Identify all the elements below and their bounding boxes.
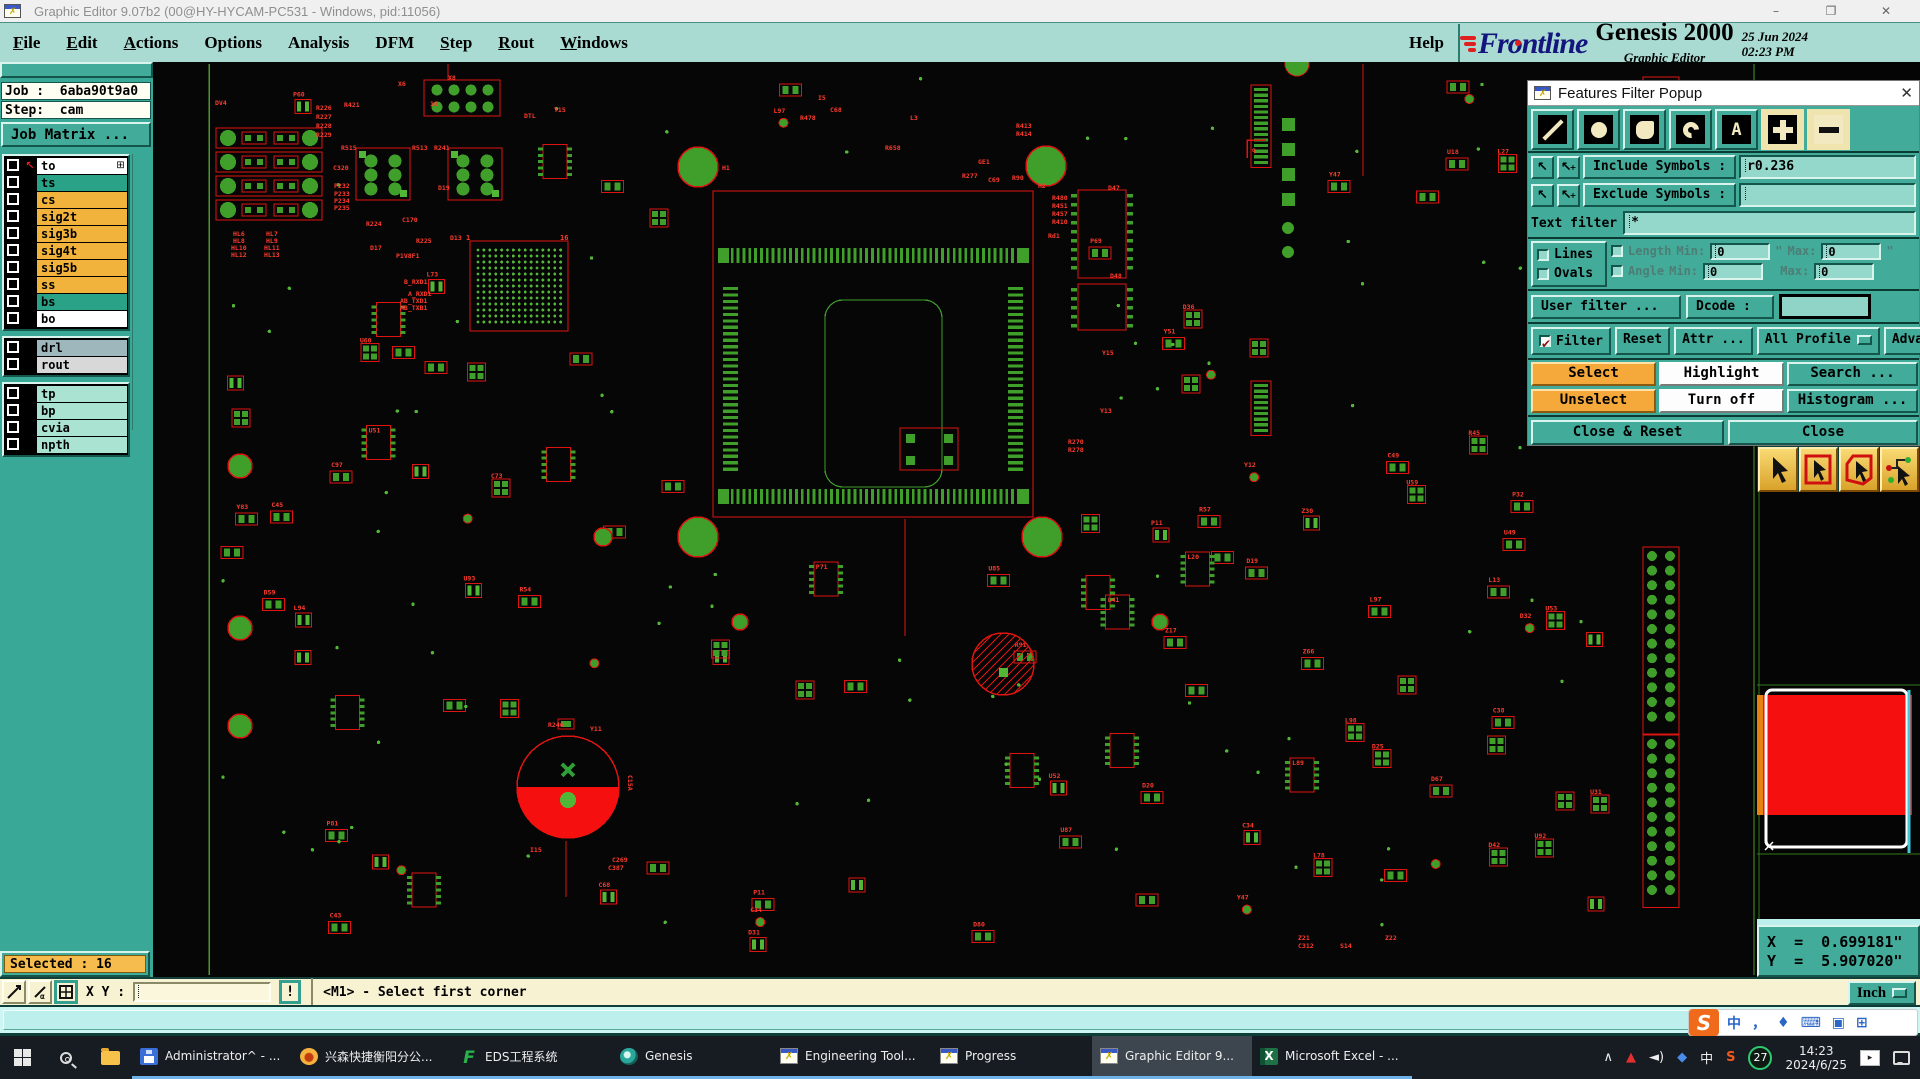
ime-indicator[interactable]: 中 (1700, 1048, 1713, 1067)
length-checkbox[interactable] (1611, 245, 1623, 257)
select-button[interactable]: Select (1531, 362, 1656, 386)
sidebar: Job : 6aba90t9a0 Step: cam Job Matrix ..… (0, 62, 153, 977)
layer-checkbox[interactable] (7, 387, 19, 399)
minimize-button[interactable]: – (1753, 0, 1799, 22)
svg-text:I5: I5 (818, 94, 826, 102)
sogou-tool-icon-0[interactable]: 中 (1727, 1013, 1741, 1033)
exclude-symbols-field[interactable] (1739, 183, 1916, 207)
svg-text:R278: R278 (1068, 446, 1084, 454)
filter-toggle[interactable]: ✔ Filter (1531, 327, 1611, 355)
svg-text:R478: R478 (800, 114, 816, 122)
svg-text:P69: P69 (1090, 237, 1102, 245)
angle-range-row: Angle Min: 0 " Max: 0 (1611, 261, 1916, 281)
close-and-reset-button[interactable]: Close & Reset (1531, 420, 1724, 445)
pcb-canvas[interactable]: P69C38D25L33R57U31P71L97L13L27U18L73Y12D… (153, 62, 1757, 977)
layer-checkbox[interactable] (7, 176, 19, 188)
menu-windows[interactable]: Windows (547, 29, 641, 57)
status-bar: α X Y : ! <M1> - Select first corner Inc… (0, 977, 1920, 1005)
taskbar-button-label: Graphic Editor 9... (1125, 1049, 1234, 1063)
svg-text:X6: X6 (398, 80, 406, 88)
menu-analysis[interactable]: Analysis (275, 29, 362, 57)
svg-text:C170: C170 (402, 216, 418, 224)
svg-text:R241: R241 (434, 144, 450, 152)
ovals-checkbox[interactable] (1537, 268, 1549, 280)
layer-icon-empty (23, 294, 37, 310)
rectangle-select-button[interactable] (1799, 447, 1839, 492)
layer-row-npth[interactable]: npth (5, 437, 127, 453)
menu-edit[interactable]: Edit (53, 29, 110, 57)
system-tray: ∧ ▲ ◄) ◆ 中 S 27 14:232024/6/25 ▸ (1603, 1036, 1920, 1079)
layer-icon-empty (23, 243, 37, 259)
layer-row-ts[interactable]: ts (5, 175, 127, 191)
sogou-ime-bar[interactable]: S 中，♦⌨▣⊞ (1688, 1009, 1918, 1036)
svg-text:C69: C69 (988, 176, 1000, 184)
text-tool-icon: A (1731, 120, 1741, 140)
svg-text:U49: U49 (1504, 529, 1516, 537)
search-button[interactable] (44, 1036, 88, 1079)
excel-icon: X (1260, 1048, 1278, 1065)
include-add-symbol-button[interactable]: ↖+ (1557, 156, 1580, 179)
svg-text:D13: D13 (450, 234, 462, 242)
svg-text:D59: D59 (264, 588, 276, 596)
folder-icon (101, 1051, 120, 1065)
svg-text:R227: R227 (316, 113, 332, 121)
svg-text:α: α (40, 992, 45, 1000)
turn-off-button[interactable]: Turn off (1659, 389, 1784, 413)
layer-name: sig4t (37, 243, 127, 259)
popup-title: Features Filter Popup (1558, 85, 1702, 102)
start-button[interactable] (0, 1036, 44, 1079)
svg-text:R277: R277 (962, 172, 978, 180)
layer-row-tp[interactable]: tp (5, 386, 127, 402)
reset-button[interactable]: Reset (1615, 327, 1670, 355)
layer-list-scrollbar[interactable] (132, 154, 146, 430)
layer-icon-empty (23, 226, 37, 242)
layer-icon-empty (23, 260, 37, 276)
horizontal-scrollbar[interactable] (0, 1005, 1920, 1036)
taskbar-button-label: 兴森快捷衡阳分公... (325, 1048, 432, 1065)
brand-panel: Frontline Genesis 2000 Graphic Editor 25… (1458, 24, 1920, 63)
svg-text:L97: L97 (1370, 596, 1382, 604)
close-button[interactable]: ✕ (1863, 0, 1909, 22)
unselect-button[interactable]: Unselect (1531, 389, 1656, 413)
measure-tool-button[interactable] (2, 980, 26, 1004)
svg-text:X8: X8 (448, 74, 456, 82)
layer-row-bo[interactable]: bo (5, 311, 127, 327)
sogou-tool-icon-2[interactable]: ♦ (1777, 1015, 1790, 1031)
svg-text:C45: C45 (271, 501, 283, 509)
svg-text:D47: D47 (1108, 184, 1120, 192)
svg-text:HL12: HL12 (231, 251, 247, 259)
svg-text:C68: C68 (830, 106, 842, 114)
notification-center-icon[interactable] (1893, 1051, 1910, 1065)
eds-icon: F (460, 1048, 478, 1065)
svg-text:C49: C49 (1387, 451, 1399, 459)
job-matrix-button[interactable]: Job Matrix ... (1, 122, 151, 147)
taskbar-button-engineering-tool-[interactable]: Engineering Tool... (772, 1036, 932, 1079)
text-tool-button[interactable]: A (1715, 109, 1758, 150)
svg-text:L13: L13 (1488, 576, 1500, 584)
svg-text:R228: R228 (316, 122, 332, 130)
svg-text:P232: P232 (334, 182, 350, 190)
svg-text:U87: U87 (1060, 826, 1072, 834)
layer-checkbox[interactable] (7, 227, 19, 239)
text-filter-field[interactable]: * (1623, 211, 1916, 235)
svg-text:HL13: HL13 (264, 251, 280, 259)
svg-text:U53: U53 (1545, 605, 1557, 613)
menu-indicator (1892, 988, 1907, 998)
layer-icon-empty (23, 386, 37, 402)
svg-text:S14: S14 (1340, 942, 1352, 950)
svg-text:C320: C320 (333, 164, 349, 172)
search-button[interactable]: Search ... (1787, 362, 1918, 386)
dcode-button[interactable]: Dcode : (1686, 295, 1774, 319)
svg-text:Y15: Y15 (1102, 349, 1114, 357)
svg-text:Y11: Y11 (590, 725, 602, 733)
layer-row-sig3b[interactable]: sig3b (5, 226, 127, 242)
window-title: Graphic Editor 9.07b2 (00@HY-HYCAM-PC531… (34, 4, 440, 19)
layer-checkbox[interactable] (7, 210, 19, 222)
layer-checkbox[interactable] (7, 358, 19, 370)
svg-text:DTL: DTL (524, 112, 536, 120)
taskbar-button-microsoft-excel-[interactable]: XMicrosoft Excel - ... (1252, 1036, 1412, 1079)
job-label: Job : 6aba90t9a0 (1, 82, 151, 100)
include-symbols-button[interactable]: Include Symbols : (1583, 155, 1736, 179)
plus-tool-button[interactable] (1761, 109, 1804, 150)
sogou-logo-icon[interactable]: S (1689, 1009, 1719, 1036)
lines-ovals-box: Lines Ovals (1531, 241, 1607, 287)
single-select-button[interactable] (1758, 447, 1798, 492)
layer-row-ss[interactable]: ss (5, 277, 127, 293)
svg-text:q: q (1252, 147, 1256, 154)
layer-checkbox[interactable] (7, 193, 19, 205)
svg-text:U52: U52 (1049, 772, 1061, 780)
svg-text:C269: C269 (612, 856, 628, 864)
svg-text:U85: U85 (988, 564, 1000, 572)
layer-grid-icon[interactable]: ⊞ (114, 158, 127, 174)
temperature-badge[interactable]: 27 (1748, 1046, 1772, 1070)
svg-text:D31: D31 (748, 928, 760, 936)
layer-name: rout (37, 357, 127, 373)
svg-text:D17: D17 (370, 244, 382, 252)
layer-icon-empty (23, 311, 37, 327)
svg-text:C73: C73 (491, 472, 503, 480)
taskbar-button-progress[interactable]: Progress (932, 1036, 1092, 1079)
plus-tool-icon (1773, 120, 1793, 140)
taskbar-button-genesis[interactable]: Genesis (612, 1036, 772, 1079)
tray-graphics-icon[interactable]: ▲ (1626, 1050, 1636, 1065)
cursor-coordinates: X = 0.699181" Y = 5.907020" (1757, 925, 1920, 977)
layer-name: to (37, 158, 114, 174)
xy-input[interactable] (133, 982, 271, 1002)
svg-text:R57: R57 (1199, 505, 1211, 513)
svg-text:P60: P60 (293, 90, 305, 98)
layer-row-rout[interactable]: rout (5, 357, 127, 373)
overview-pane[interactable] (1757, 492, 1920, 925)
svg-text:D19: D19 (1246, 557, 1258, 565)
step-label: Step: cam (1, 101, 151, 119)
svg-text:Y83: Y83 (236, 503, 248, 511)
search-icon (60, 1052, 72, 1064)
sogou-tool-icon-3[interactable]: ⌨ (1801, 1015, 1821, 1031)
polygon-select-button[interactable] (1839, 447, 1879, 492)
popup-window-icon (1534, 86, 1551, 100)
layer-row-sig4t[interactable]: sig4t (5, 243, 127, 259)
filter-actions-row: ✔ Filter Reset Attr ... All Profile Adva… (1528, 324, 1919, 360)
shell-icon (300, 1048, 318, 1065)
alert-button[interactable]: ! (279, 980, 301, 1004)
angle-min-field[interactable]: 0 (1703, 263, 1763, 280)
svg-text:C15A: C15A (626, 775, 634, 791)
select-actions-row: Select Highlight Search ... Unselect Tur… (1528, 360, 1919, 415)
exclude-pick-symbol-button[interactable]: ↖ (1531, 184, 1554, 207)
exclude-add-symbol-button[interactable]: ↖+ (1557, 184, 1580, 207)
layer-icon-empty (23, 209, 37, 225)
menu-step[interactable]: Step (427, 29, 485, 57)
lines-checkbox-row[interactable]: Lines (1537, 245, 1601, 264)
layer-group: tpbpcvianpth (2, 382, 130, 457)
svg-text:R224: R224 (366, 220, 382, 228)
svg-text:Y13: Y13 (1100, 407, 1112, 415)
taskbar-button--[interactable]: 兴森快捷衡阳分公... (292, 1036, 452, 1079)
svg-text:R515: R515 (341, 144, 357, 152)
layer-row-sig5b[interactable]: sig5b (5, 260, 127, 276)
lines-checkbox[interactable] (1537, 249, 1549, 261)
svg-text:H1: H1 (722, 164, 730, 172)
svg-text:L27: L27 (1497, 148, 1509, 156)
svg-text:R246: R246 (548, 721, 564, 729)
layer-icon-empty (23, 437, 37, 453)
svg-text:D42: D42 (1488, 841, 1500, 849)
svg-text:R658: R658 (885, 144, 901, 152)
svg-text:Z66: Z66 (1303, 647, 1315, 655)
exclude-symbols-row: ↖ ↖+ Exclude Symbols : (1528, 181, 1919, 209)
svg-text:R45: R45 (1468, 429, 1480, 437)
xwin-icon (780, 1048, 798, 1064)
genesis-icon (620, 1048, 638, 1065)
net-select-button[interactable] (1880, 447, 1920, 492)
ovals-checkbox-row[interactable]: Ovals (1537, 264, 1601, 283)
exclude-symbols-button[interactable]: Exclude Symbols : (1583, 183, 1736, 207)
layer-row-drl[interactable]: drl (5, 340, 127, 356)
histogram-button[interactable]: Histogram ... (1787, 389, 1918, 413)
minus-tool-icon (1819, 127, 1839, 133)
surfaces-tool-button[interactable] (1623, 109, 1666, 150)
length-range-row: Length Min: 0 " Max: 0 " (1611, 241, 1916, 261)
layer-name: bo (37, 311, 127, 327)
angle-tool-button[interactable]: α (28, 980, 52, 1004)
svg-text:R451: R451 (1052, 202, 1068, 210)
status-message: <M1> - Select first corner (311, 978, 527, 1006)
svg-text:P71: P71 (816, 563, 828, 571)
highlight-button[interactable]: Highlight (1659, 362, 1784, 386)
taskbar-button-graphic-editor-9-[interactable]: Graphic Editor 9... (1092, 1036, 1252, 1079)
taskbar-button-label: Progress (965, 1049, 1016, 1063)
floppy-icon (140, 1048, 158, 1065)
popup-close-icon[interactable]: ✕ (1900, 84, 1913, 102)
layer-name: cs (37, 192, 127, 208)
svg-text:U18: U18 (1447, 148, 1459, 156)
svg-text:Y47: Y47 (1329, 170, 1341, 178)
popup-titlebar[interactable]: Features Filter Popup ✕ (1528, 81, 1919, 106)
layer-icon-empty (23, 277, 37, 293)
sogou-tray-icon[interactable]: S (1726, 1050, 1735, 1065)
popup-close-button[interactable]: Close (1728, 420, 1918, 445)
menu-actions[interactable]: Actions (111, 29, 192, 57)
lines-label: Lines (1554, 247, 1593, 262)
arcs-tool-button[interactable] (1669, 109, 1712, 150)
layer-name: npth (37, 437, 127, 453)
layer-checkbox[interactable] (7, 438, 19, 450)
layer-name: ts (37, 175, 127, 191)
layer-checkbox[interactable] (7, 261, 19, 273)
windows-logo-icon (14, 1049, 31, 1066)
layer-name: drl (37, 340, 127, 356)
app-window-icon (4, 4, 21, 18)
svg-text:R457: R457 (1052, 210, 1068, 218)
svg-text:P11: P11 (1151, 519, 1163, 527)
angle-label: Angle (1628, 264, 1664, 278)
include-symbols-row: ↖ ↖+ Include Symbols : r0.236 (1528, 153, 1919, 181)
layer-row-bs[interactable]: bs (5, 294, 127, 310)
svg-text:Y12: Y12 (1244, 461, 1256, 469)
file-explorer-button[interactable] (88, 1036, 132, 1079)
layer-checkbox[interactable] (7, 312, 19, 324)
include-symbols-field[interactable]: r0.236 (1739, 155, 1916, 179)
svg-text:C38: C38 (1493, 707, 1505, 715)
layer-row-to[interactable]: ↖to⊞ (5, 158, 127, 174)
taskbar-button-administrator-[interactable]: Administrator^ - ... (132, 1036, 292, 1079)
svg-text:L89: L89 (1292, 759, 1304, 767)
svg-text:DV4: DV4 (215, 99, 227, 107)
pads-tool-button[interactable] (1577, 109, 1620, 150)
volume-icon[interactable]: ◄) (1649, 1050, 1664, 1065)
taskbar-button-label: Microsoft Excel - ... (1285, 1049, 1399, 1063)
svg-text:16: 16 (560, 234, 568, 242)
text-filter-label: Text filter (1531, 216, 1617, 231)
layer-icon-empty (23, 403, 37, 419)
svg-text:R513: R513 (412, 144, 428, 152)
lines-tool-button[interactable] (1531, 109, 1574, 150)
layer-name: cvia (37, 420, 127, 436)
selected-count: Selected : 16 (4, 955, 146, 973)
layer-row-sig2t[interactable]: sig2t (5, 209, 127, 225)
selected-count-panel: Selected : 16 (0, 951, 150, 977)
sogou-tool-icon-4[interactable]: ▣ (1832, 1015, 1845, 1031)
maximize-button[interactable]: ❐ (1808, 0, 1854, 22)
advanced-button[interactable]: Advanced... (1884, 327, 1920, 355)
layer-name: ss (37, 277, 127, 293)
svg-text:L41: L41 (1108, 596, 1120, 604)
menu-bar: FileEditActionsOptionsAnalysisDFMStepRou… (0, 22, 1920, 62)
tray-chevron-icon[interactable]: ∧ (1603, 1050, 1613, 1065)
layer-group: drlrout (2, 336, 130, 377)
layer-checkbox[interactable] (7, 421, 19, 433)
layer-row-bp[interactable]: bp (5, 403, 127, 419)
all-profile-menu[interactable]: All Profile (1757, 327, 1880, 355)
user-filter-row: User filter ... Dcode : (1528, 291, 1919, 324)
svg-text:L20: L20 (1187, 553, 1199, 561)
clock[interactable]: 14:232024/6/25 (1785, 1044, 1847, 1072)
svg-text:I15: I15 (530, 846, 542, 854)
layer-checkbox[interactable] (7, 159, 19, 171)
video-player-icon[interactable]: ▸ (1860, 1050, 1880, 1066)
taskbar-button-eds-[interactable]: FEDS工程系统 (452, 1036, 612, 1079)
svg-text:C43: C43 (330, 911, 342, 919)
svg-text:Z21: Z21 (1298, 934, 1310, 942)
layer-checkbox[interactable] (7, 278, 19, 290)
menu-help[interactable]: Help (1395, 23, 1458, 63)
length-min-field[interactable]: 0 (1710, 243, 1770, 260)
user-filter-button[interactable]: User filter ... (1531, 295, 1681, 319)
svg-text:R413: R413 (1016, 122, 1032, 130)
pads-tool-icon (1591, 122, 1607, 138)
taskbar: Administrator^ - ...兴森快捷衡阳分公...FEDS工程系统G… (0, 1036, 1920, 1079)
sogou-tool-icon-1[interactable]: ， (1752, 1013, 1766, 1033)
svg-text:R410: R410 (1052, 218, 1068, 226)
dcode-field[interactable] (1779, 294, 1871, 319)
menu-rout[interactable]: Rout (485, 29, 547, 57)
svg-text:H2: H2 (1038, 182, 1046, 190)
layer-icon-empty (23, 357, 37, 373)
window-zoom-button[interactable] (54, 980, 78, 1004)
layer-row-cs[interactable]: cs (5, 192, 127, 208)
overview-orange-strip (1757, 695, 1763, 815)
attr-button[interactable]: Attr ... (1674, 327, 1753, 355)
sogou-tool-icon-5[interactable]: ⊞ (1856, 1015, 1868, 1031)
layer-icon-empty (23, 420, 37, 436)
svg-text:P81: P81 (327, 820, 339, 828)
minus-tool-button[interactable] (1807, 109, 1850, 150)
svg-text:L78: L78 (1313, 852, 1325, 860)
filter-label: Filter (1556, 334, 1603, 349)
svg-text:L98: L98 (1345, 717, 1357, 725)
svg-text:D80: D80 (973, 920, 985, 928)
layer-checkbox[interactable] (7, 244, 19, 256)
layer-checkbox[interactable] (7, 341, 19, 353)
angle-max-field[interactable]: 0 (1814, 263, 1874, 280)
svg-text:L3: L3 (910, 114, 918, 122)
units-menu-button[interactable]: Inch (1848, 981, 1916, 1005)
xy-label: X Y : (86, 985, 125, 1000)
menu-file[interactable]: File (0, 29, 53, 57)
svg-text:B_RXD1: B_RXD1 (404, 278, 428, 286)
svg-text:C34: C34 (1242, 822, 1254, 830)
layer-name: sig3b (37, 226, 127, 242)
layer-name: sig2t (37, 209, 127, 225)
taskbar-button-label: Genesis (645, 1049, 693, 1063)
layer-icon-empty (23, 340, 37, 356)
menu-options[interactable]: Options (191, 29, 275, 57)
tray-app-icon[interactable]: ◆ (1677, 1050, 1687, 1065)
svg-text:10: 10 (430, 100, 438, 108)
layer-row-cvia[interactable]: cvia (5, 420, 127, 436)
menu-dfm[interactable]: DFM (362, 29, 427, 57)
length-max-field[interactable]: 0 (1821, 243, 1881, 260)
svg-text:Y15: Y15 (554, 106, 566, 114)
menu-indicator (1857, 335, 1872, 345)
layer-name: bs (37, 294, 127, 310)
layer-name: tp (37, 386, 127, 402)
svg-text:U93: U93 (464, 574, 476, 582)
angle-checkbox[interactable] (1611, 265, 1623, 277)
sidebar-top-strip (0, 62, 153, 78)
layer-checkbox[interactable] (7, 404, 19, 416)
filter-checkbox[interactable]: ✔ (1539, 335, 1551, 347)
layer-checkbox[interactable] (7, 295, 19, 307)
svg-text:P235: P235 (334, 204, 350, 212)
include-pick-symbol-button[interactable]: ↖ (1531, 156, 1554, 179)
